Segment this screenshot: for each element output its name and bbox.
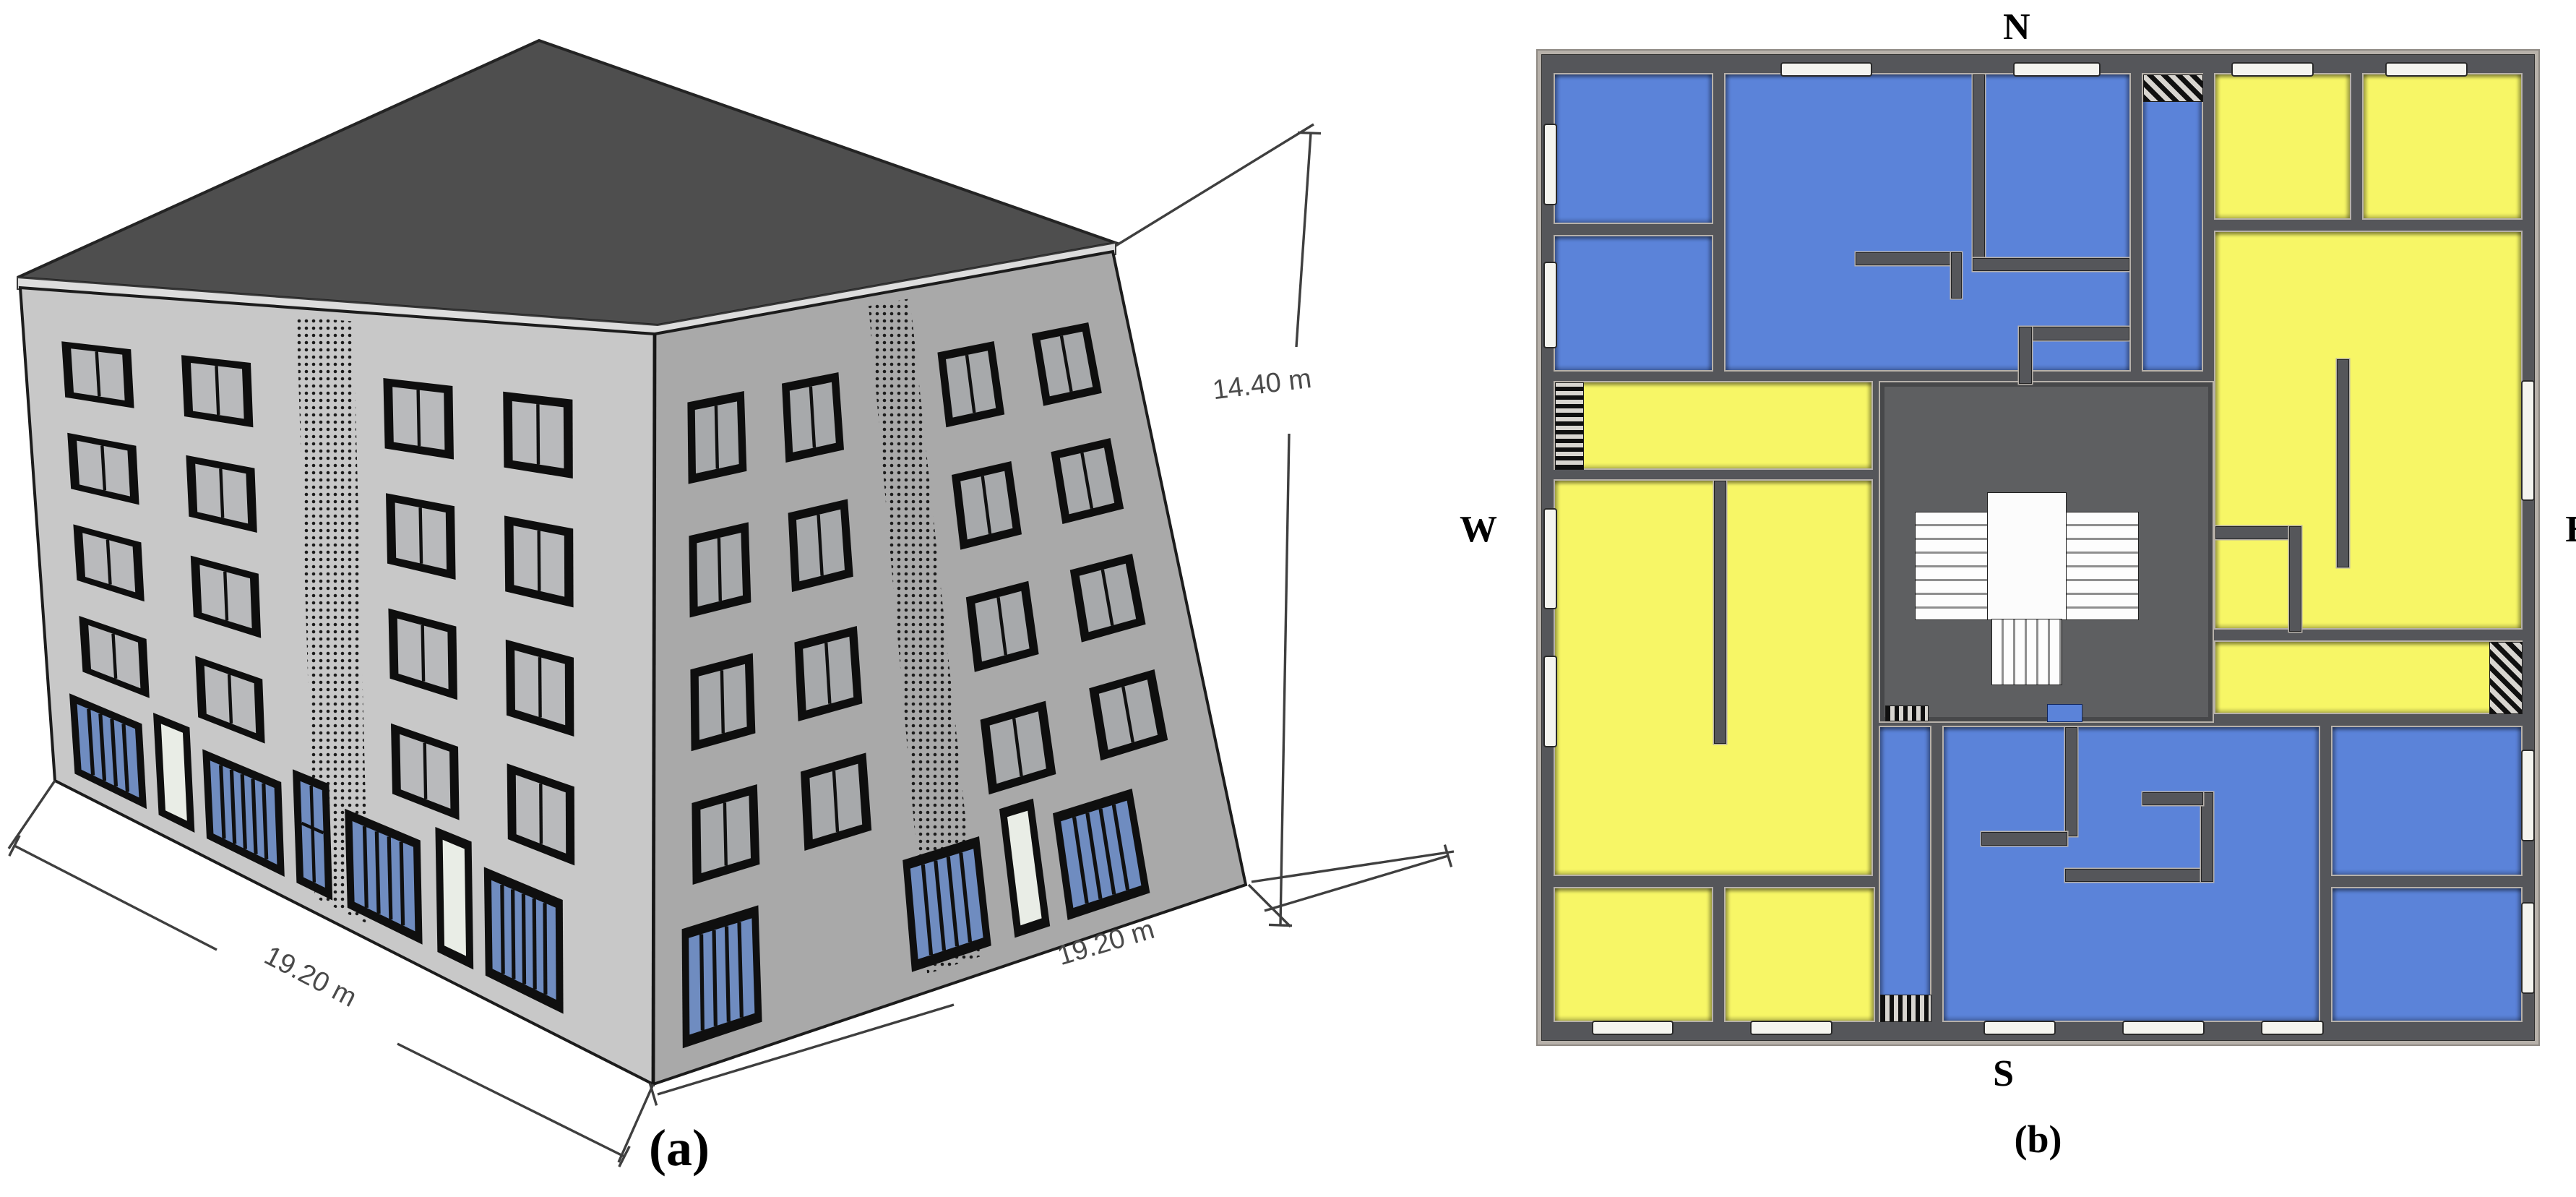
storefront-mullion — [727, 926, 729, 1021]
stair-flight-left — [1915, 512, 1988, 619]
interior-wall — [2019, 327, 2129, 340]
window-mullion — [538, 404, 538, 464]
floor-plan: N S W E — [1538, 51, 2538, 1044]
window-slit-south — [2122, 1021, 2205, 1035]
interior-wall — [2142, 792, 2203, 805]
room-east-yellow-large — [2215, 232, 2521, 628]
window-slit-north — [2013, 62, 2101, 77]
storefront-mullion — [364, 826, 366, 908]
interior-wall — [1981, 832, 2067, 845]
window-mullion — [722, 670, 723, 733]
window-slit-south — [1983, 1021, 2056, 1035]
storefront-mullion — [739, 922, 741, 1018]
window-mullion — [421, 507, 421, 564]
room-se-blue-1 — [2332, 727, 2521, 875]
interior-wall — [1856, 252, 1963, 265]
vent-shaft-hatch — [2489, 642, 2523, 714]
room-south-corridor-blue — [1880, 727, 1930, 1021]
dimension-label-height: 14.40 m — [1211, 364, 1313, 406]
window-mullion — [725, 802, 726, 865]
window-mullion — [418, 390, 419, 446]
window-mullion — [229, 674, 231, 724]
window-slit-south — [2261, 1021, 2323, 1035]
core-door-marker — [2047, 704, 2082, 722]
dimension-label-width-left: 19.20 m — [259, 940, 361, 1013]
window-slit-north — [1780, 62, 1873, 77]
storefront-mullion — [389, 836, 391, 919]
storefront-mullion — [401, 842, 402, 926]
interior-wall — [2289, 526, 2301, 632]
window-slit-south — [1592, 1021, 1674, 1035]
window-slit-north — [2231, 62, 2314, 77]
interior-wall — [1973, 74, 1985, 266]
interior-wall — [2337, 359, 2349, 567]
vent-shaft-hatch — [1880, 995, 1931, 1021]
window-slit-south — [1750, 1021, 1832, 1035]
room-ne-yellow-1 — [2215, 74, 2349, 218]
window-mullion — [539, 531, 540, 591]
room-sw-yellow-1 — [1555, 888, 1712, 1021]
storefront-mullion — [534, 898, 535, 990]
room-ne-yellow-2 — [2364, 74, 2521, 218]
compass-north-label: N — [2003, 6, 2030, 48]
storefront-mullion — [545, 903, 546, 995]
window-slit-west — [1543, 508, 1557, 609]
window-slit-west — [1543, 124, 1557, 205]
caption-panel-b: (b) — [1538, 1117, 2538, 1162]
window-slit-west — [1543, 656, 1557, 747]
interior-wall — [2201, 792, 2213, 883]
room-north-blue-large — [1726, 74, 2129, 370]
window-slit-east — [2521, 380, 2535, 502]
room-east-yellow-strip — [2215, 642, 2521, 713]
storefront-mullion — [502, 885, 503, 974]
building-corner-edge — [653, 334, 655, 1084]
stair-flight-bottom — [1991, 619, 2062, 685]
storefront-mullion — [523, 894, 524, 984]
window-mullion — [719, 538, 720, 601]
stair-landing — [1987, 492, 2066, 619]
interior-wall — [2065, 727, 2077, 837]
window-mullion — [540, 784, 541, 844]
compass-east-label: E — [2565, 508, 2576, 551]
floor-plan-walls — [1541, 54, 2535, 1041]
core-hatch-small — [1885, 705, 1929, 721]
room-sw-yellow-2 — [1726, 888, 1874, 1021]
window-slit-north — [2385, 62, 2468, 77]
interior-wall — [2019, 327, 2031, 383]
window-mullion — [425, 743, 426, 799]
compass-west-label: W — [1460, 508, 1497, 551]
window-mullion — [225, 572, 227, 621]
storefront-mullion — [513, 889, 514, 979]
vent-shaft-hatch — [2143, 74, 2203, 101]
building-3d-view: 19.20 m 19.20 m 14.40 m (a) — [0, 0, 1489, 1197]
window-slit-east — [2521, 902, 2535, 994]
window-mullion — [716, 406, 718, 468]
interior-wall — [1951, 252, 1963, 299]
storefront-mullion — [702, 934, 703, 1030]
figure-canvas: 19.20 m 19.20 m 14.40 m (a) N S W E (b) — [0, 0, 2576, 1197]
caption-panel-a: (a) — [649, 1119, 710, 1177]
window-mullion — [216, 366, 218, 415]
compass-south-label: S — [1993, 1052, 2014, 1095]
interior-wall — [2065, 869, 2202, 882]
window-slit-west — [1543, 262, 1557, 348]
room-west-yellow-strip — [1555, 382, 1871, 469]
stair-flight-right — [2066, 512, 2139, 619]
door-panel — [443, 840, 466, 956]
room-north-corridor-blue — [2143, 74, 2202, 370]
window-mullion — [220, 468, 223, 518]
room-nw-blue-2 — [1555, 236, 1712, 370]
storefront-mullion — [376, 831, 379, 914]
window-slit-east — [2521, 750, 2535, 841]
window-mullion — [423, 625, 423, 682]
room-se-blue-2 — [2332, 888, 2521, 1021]
vent-shaft-hatch — [1555, 382, 1584, 471]
interior-wall — [1714, 481, 1726, 745]
room-nw-blue-1 — [1555, 74, 1712, 222]
storefront-mullion — [714, 930, 715, 1026]
window-mullion — [540, 657, 540, 717]
interior-wall — [1973, 258, 2130, 271]
